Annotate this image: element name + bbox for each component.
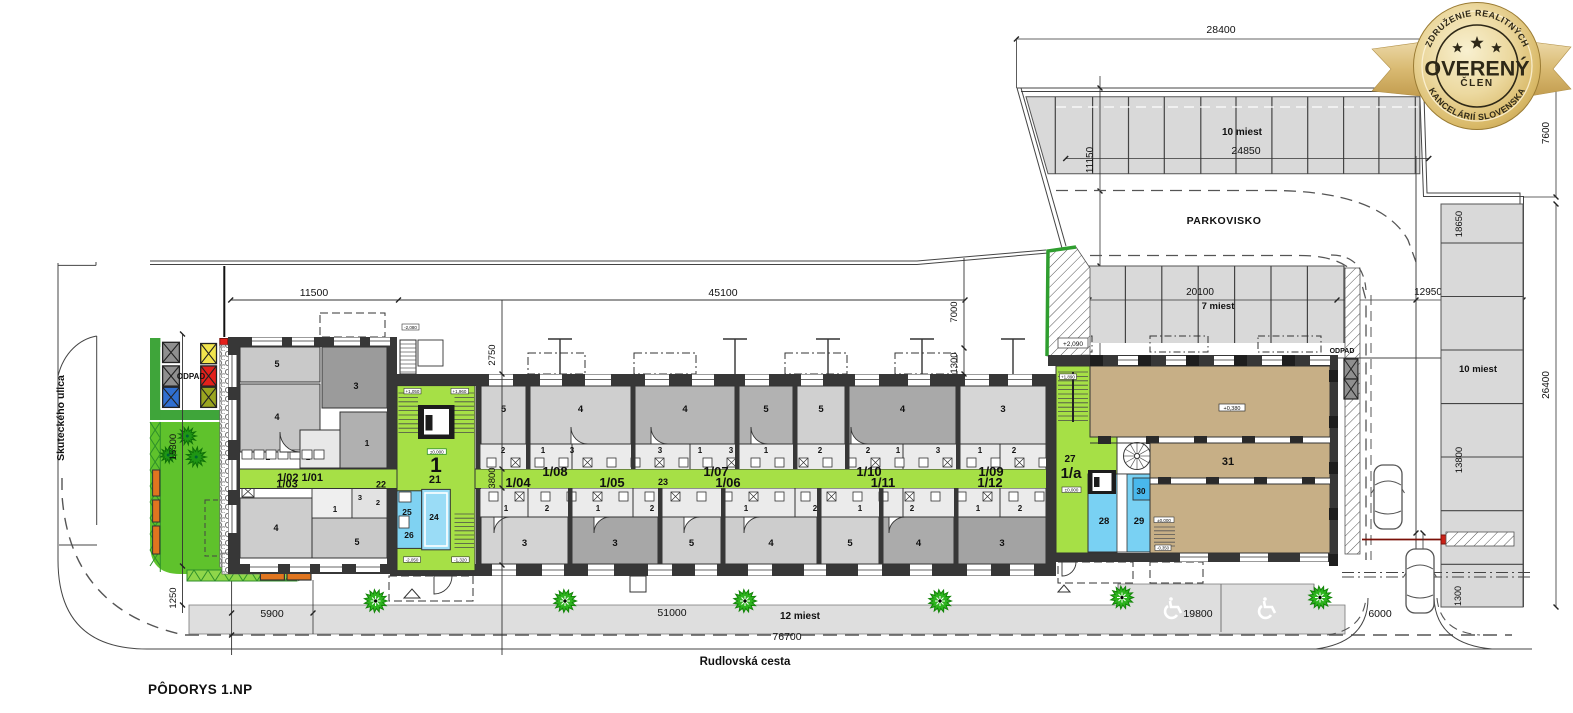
- svg-text:2: 2: [376, 498, 380, 507]
- svg-text:2: 2: [545, 504, 550, 513]
- svg-text:11150: 11150: [1085, 146, 1096, 173]
- svg-text:13800: 13800: [1454, 447, 1465, 473]
- svg-text:22: 22: [376, 480, 386, 490]
- svg-text:4: 4: [768, 538, 774, 549]
- svg-text:+2,090: +2,090: [1063, 341, 1083, 348]
- svg-text:21: 21: [429, 474, 441, 486]
- svg-text:20100: 20100: [1186, 287, 1214, 298]
- svg-text:1: 1: [333, 505, 338, 514]
- svg-text:23: 23: [658, 477, 668, 487]
- svg-text:2: 2: [501, 446, 506, 455]
- svg-text:±0,000: ±0,000: [1157, 518, 1171, 523]
- svg-text:1300: 1300: [949, 352, 960, 373]
- svg-text:31: 31: [1222, 456, 1234, 468]
- svg-text:-0,350: -0,350: [1157, 546, 1170, 551]
- svg-text:3800: 3800: [487, 467, 498, 488]
- svg-text:15300: 15300: [168, 434, 179, 460]
- svg-text:1: 1: [698, 446, 703, 455]
- svg-text:26: 26: [404, 530, 414, 540]
- svg-text:OVERENÝ: OVERENÝ: [1424, 56, 1529, 81]
- svg-text:4: 4: [273, 523, 278, 533]
- svg-text:76700: 76700: [772, 631, 801, 643]
- svg-text:7 miest: 7 miest: [1202, 301, 1236, 312]
- svg-text:1: 1: [896, 446, 901, 455]
- svg-text:5: 5: [689, 538, 695, 549]
- svg-text:3: 3: [570, 446, 575, 455]
- svg-text:2750: 2750: [487, 344, 498, 365]
- svg-text:1/03: 1/03: [276, 479, 297, 491]
- svg-text:1/06: 1/06: [715, 475, 740, 490]
- svg-text:5900: 5900: [260, 608, 284, 620]
- svg-text:1300: 1300: [1453, 586, 1463, 606]
- svg-text:5: 5: [354, 537, 359, 547]
- svg-text:3: 3: [658, 446, 663, 455]
- svg-text:1: 1: [744, 504, 749, 513]
- svg-text:1: 1: [858, 504, 863, 513]
- svg-text:+1,050: +1,050: [406, 389, 420, 394]
- svg-text:1: 1: [541, 446, 546, 455]
- svg-text:4: 4: [682, 404, 688, 415]
- svg-text:3: 3: [612, 538, 617, 549]
- svg-text:2: 2: [1012, 446, 1017, 455]
- svg-text:45100: 45100: [708, 287, 737, 299]
- svg-text:-1,320: -1,320: [454, 557, 467, 562]
- svg-text:+0,380: +0,380: [1224, 406, 1241, 412]
- svg-text:ODPAD: ODPAD: [177, 372, 206, 381]
- svg-text:12950: 12950: [1414, 287, 1442, 298]
- svg-text:4: 4: [578, 404, 584, 415]
- svg-text:-2,080: -2,080: [404, 325, 417, 330]
- svg-text:5: 5: [274, 359, 279, 369]
- svg-text:1/12: 1/12: [977, 475, 1002, 490]
- svg-text:28: 28: [1099, 516, 1110, 527]
- svg-text:12 miest: 12 miest: [780, 611, 821, 622]
- svg-text:3: 3: [936, 446, 941, 455]
- svg-text:18650: 18650: [1454, 211, 1465, 237]
- svg-text:+1,960: +1,960: [453, 389, 467, 394]
- svg-text:1: 1: [596, 504, 601, 513]
- svg-text:3: 3: [358, 493, 362, 502]
- svg-text:-2,050: -2,050: [406, 557, 419, 562]
- svg-text:11500: 11500: [300, 287, 329, 299]
- svg-text:1: 1: [504, 504, 509, 513]
- svg-text:3: 3: [522, 538, 527, 549]
- svg-text:ČLEN: ČLEN: [1460, 76, 1493, 89]
- svg-text:+1,890: +1,890: [1061, 374, 1075, 379]
- svg-text:4: 4: [916, 538, 922, 549]
- svg-text:27: 27: [1064, 454, 1076, 465]
- svg-text:19800: 19800: [1183, 608, 1212, 620]
- svg-text:Skuteckého ulica: Skuteckého ulica: [55, 375, 67, 461]
- svg-text:30: 30: [1137, 487, 1146, 496]
- svg-text:3: 3: [729, 446, 734, 455]
- svg-text:1/05: 1/05: [599, 475, 624, 490]
- svg-text:3: 3: [1000, 404, 1005, 415]
- svg-text:29: 29: [1134, 516, 1145, 527]
- svg-text:10 miest: 10 miest: [1459, 364, 1498, 375]
- svg-text:4: 4: [900, 404, 906, 415]
- svg-text:3: 3: [353, 381, 358, 391]
- svg-text:26400: 26400: [1541, 371, 1552, 399]
- svg-text:1: 1: [976, 504, 981, 513]
- svg-text:2: 2: [1018, 504, 1023, 513]
- svg-text:±0,000: ±0,000: [1065, 488, 1079, 493]
- svg-text:2: 2: [910, 504, 915, 513]
- svg-text:PARKOVISKO: PARKOVISKO: [1187, 215, 1262, 227]
- svg-text:2: 2: [866, 446, 871, 455]
- svg-text:1: 1: [764, 446, 769, 455]
- svg-text:2: 2: [650, 504, 655, 513]
- svg-text:6000: 6000: [1368, 608, 1392, 620]
- svg-text:7600: 7600: [1541, 121, 1552, 144]
- svg-text:5: 5: [847, 538, 853, 549]
- svg-text:1/08: 1/08: [542, 464, 567, 479]
- svg-text:4: 4: [274, 412, 279, 422]
- svg-text:1/a: 1/a: [1061, 465, 1083, 482]
- svg-text:2: 2: [818, 446, 823, 455]
- svg-text:24: 24: [429, 512, 439, 522]
- svg-text:5: 5: [763, 404, 769, 415]
- svg-text:1/04: 1/04: [505, 475, 531, 490]
- svg-text:51000: 51000: [657, 607, 686, 619]
- svg-text:28400: 28400: [1206, 24, 1235, 36]
- svg-text:Rudlovská cesta: Rudlovská cesta: [700, 656, 791, 668]
- svg-text:25: 25: [402, 507, 412, 517]
- svg-text:1: 1: [978, 446, 983, 455]
- svg-text:10 miest: 10 miest: [1222, 127, 1263, 138]
- svg-text:3: 3: [999, 538, 1004, 549]
- svg-text:PÔDORYS 1.NP: PÔDORYS 1.NP: [148, 682, 252, 697]
- svg-text:5: 5: [818, 404, 824, 415]
- svg-text:1: 1: [365, 438, 370, 448]
- svg-text:24850: 24850: [1231, 145, 1260, 157]
- svg-text:7000: 7000: [949, 301, 960, 322]
- svg-text:1250: 1250: [168, 587, 179, 608]
- svg-text:ODPAD: ODPAD: [1330, 348, 1355, 355]
- svg-text:1/11: 1/11: [871, 475, 896, 490]
